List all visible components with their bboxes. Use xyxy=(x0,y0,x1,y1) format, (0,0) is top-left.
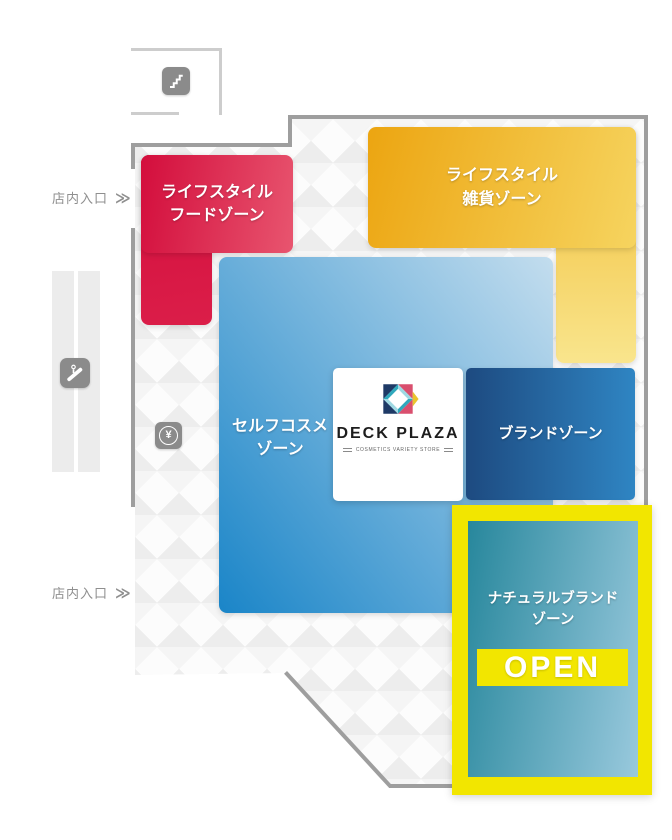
zone-brand: ブランドゾーン xyxy=(466,368,635,500)
entrance-bottom-arrow-icon: ≫ xyxy=(115,584,131,602)
zone-self-cosme-label: セルフコスメ ゾーン xyxy=(219,415,341,461)
store-tagline: COSMETICS VARIETY STORE xyxy=(356,447,440,453)
zone-lifestyle-food-label: ライフスタイル フードゾーン xyxy=(161,181,273,227)
stair-room-outline-top xyxy=(131,48,222,51)
store-tagline-row: COSMETICS VARIETY STORE xyxy=(343,447,453,453)
tagline-mark-left xyxy=(343,448,352,452)
zone-natural-brand: ナチュラルブランド ゾーン OPEN xyxy=(468,521,638,777)
entrance-top-arrow-icon: ≫ xyxy=(115,189,131,207)
map-wall-top xyxy=(288,115,648,119)
yen-symbol: ¥ xyxy=(159,426,178,445)
tagline-mark-right xyxy=(444,448,453,452)
map-wall-bottom xyxy=(389,784,453,788)
map-wall-right xyxy=(644,115,648,510)
open-badge: OPEN xyxy=(504,651,601,685)
zone-brand-label: ブランドゾーン xyxy=(498,423,602,445)
entrance-bottom-text: 店内入口 xyxy=(52,583,108,602)
cash-register-icon: ¥ xyxy=(155,422,182,449)
zone-lifestyle-goods: ライフスタイル 雑貨ゾーン xyxy=(368,127,636,248)
open-banner: OPEN xyxy=(477,649,628,686)
entrance-label-bottom: 店内入口 ≫ xyxy=(52,583,131,602)
escalator-icon xyxy=(60,358,90,388)
map-wall-left-lower xyxy=(131,228,135,507)
stair-room-outline-right xyxy=(219,48,222,115)
zone-natural-brand-highlight: ナチュラルブランド ゾーン OPEN xyxy=(452,505,652,795)
store-name: DECK PLAZA xyxy=(336,425,459,443)
map-wall-top-left xyxy=(131,143,292,147)
stairs-icon xyxy=(162,67,190,95)
stair-room-outline-bottom xyxy=(131,112,179,115)
store-floor-map: ライフスタイル フードゾーン ライフスタイル 雑貨ゾーン セルフコスメ ゾーン xyxy=(0,0,672,840)
zone-lifestyle-goods-label: ライフスタイル 雑貨ゾーン xyxy=(446,164,558,210)
zone-natural-brand-label: ナチュラルブランド ゾーン xyxy=(468,589,638,631)
entrance-top-text: 店内入口 xyxy=(52,188,108,207)
zone-lifestyle-food: ライフスタイル フードゾーン xyxy=(141,155,293,253)
map-wall-left-upper xyxy=(131,143,135,169)
entrance-label-top: 店内入口 ≫ xyxy=(52,188,131,207)
store-logo-card: DECK PLAZA COSMETICS VARIETY STORE xyxy=(333,368,463,501)
deck-plaza-logo-icon xyxy=(377,378,419,420)
